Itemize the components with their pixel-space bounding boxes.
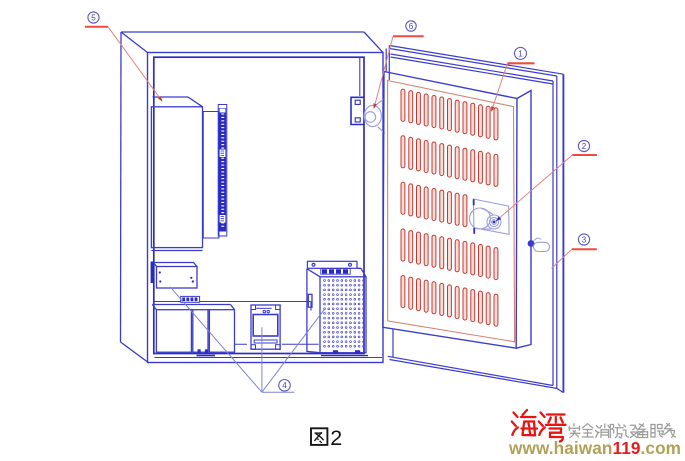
svg-text:3: 3 xyxy=(582,235,587,244)
svg-text:6: 6 xyxy=(409,22,414,31)
svg-text:www.haiwan119.com: www.haiwan119.com xyxy=(508,438,681,458)
svg-text:2: 2 xyxy=(330,426,342,450)
svg-text:1: 1 xyxy=(518,49,523,58)
svg-text:2: 2 xyxy=(582,142,587,151)
svg-text:5: 5 xyxy=(91,13,96,22)
svg-text:4: 4 xyxy=(282,381,287,390)
